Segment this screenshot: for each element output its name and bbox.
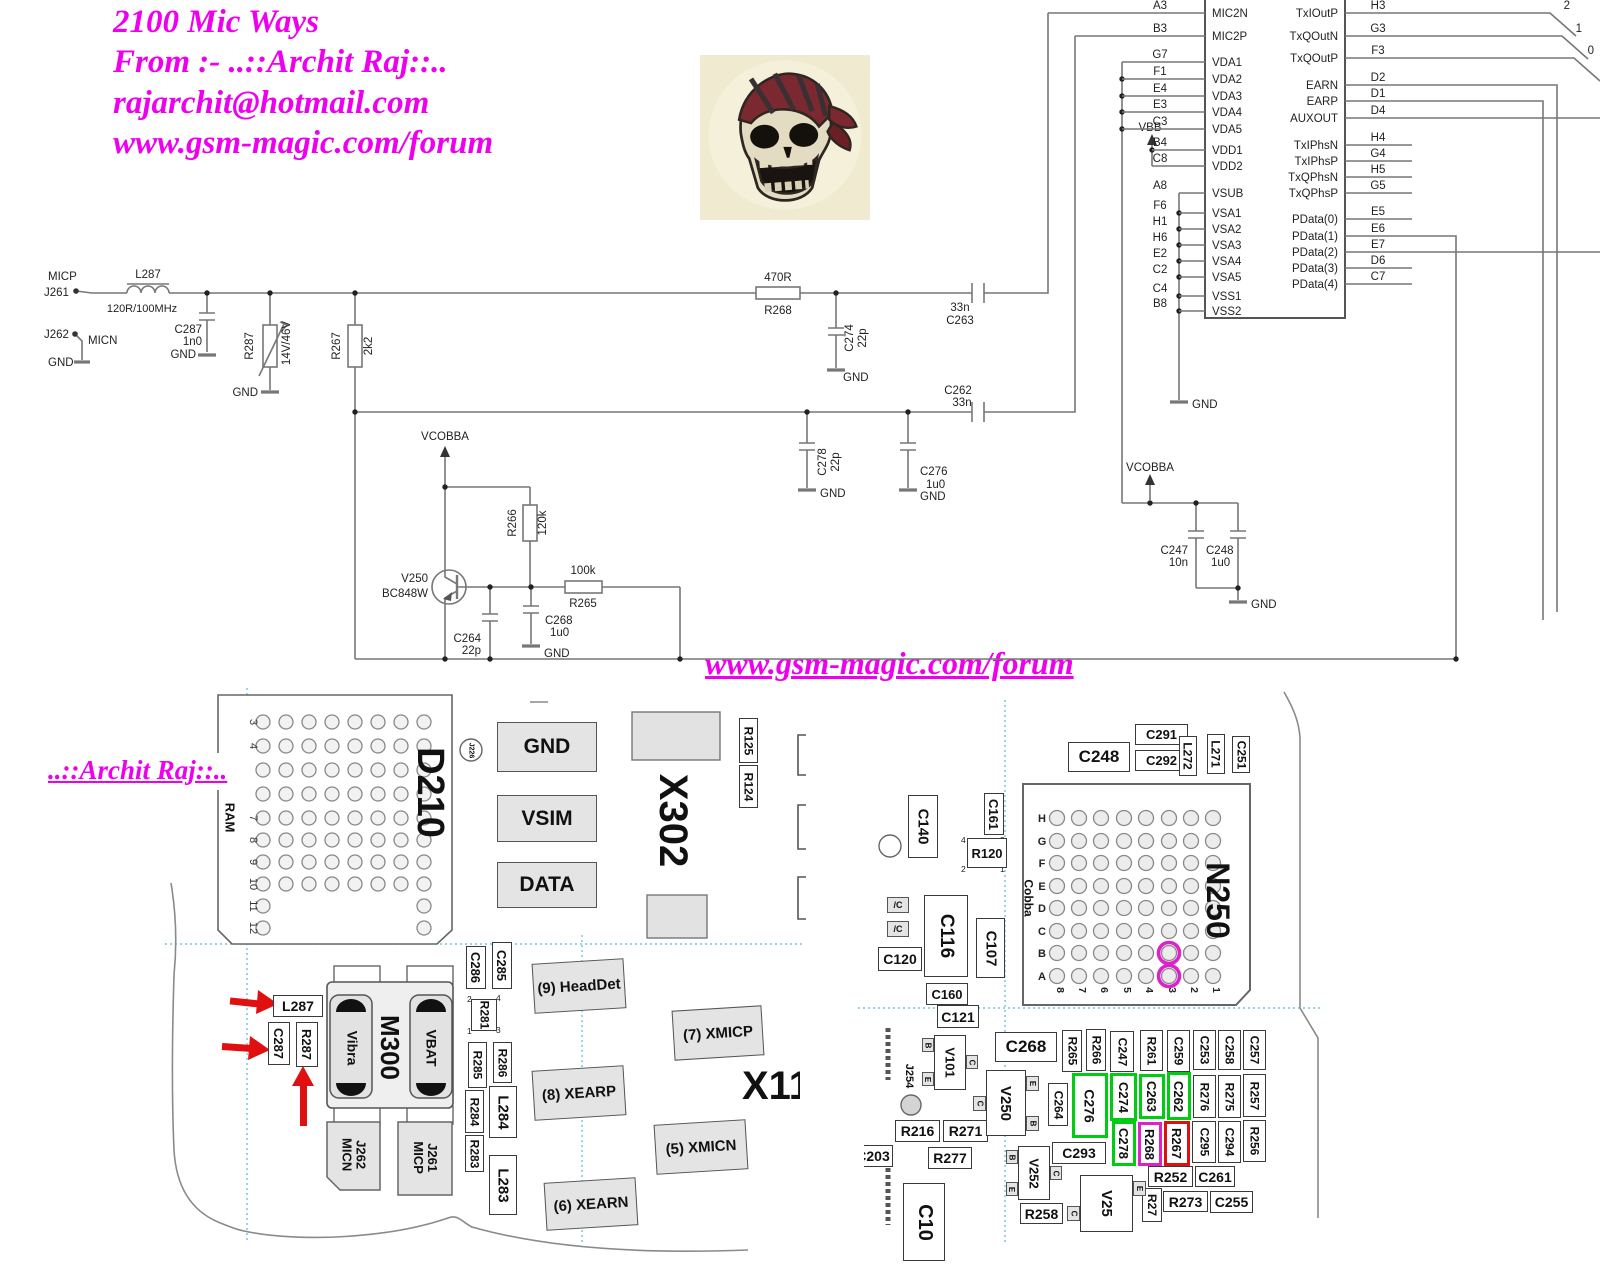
pcb-label-c121: C121: [937, 1005, 979, 1028]
pcb-label-c120: C120: [878, 947, 922, 971]
pcb-label-r283: R283: [465, 1135, 484, 1172]
pcb-label-r286: R286: [493, 1042, 512, 1083]
ic-pin-name-TxQPhsP: TxQPhsP: [1289, 188, 1339, 200]
pcb-label-c274: C274: [1110, 1073, 1137, 1121]
n250-col-number-5: 5: [1121, 987, 1133, 993]
ic-pin-name-PData(1): PData(1): [1292, 231, 1338, 243]
pcb-label-j262: J262MICN: [327, 1122, 380, 1188]
n250-col-number-6: 6: [1098, 987, 1110, 993]
pcb-label-r265: R265: [1062, 1030, 1082, 1072]
svg-text:R267: R267: [331, 332, 343, 360]
svg-text:10n: 10n: [1169, 557, 1188, 569]
ic-pin-name-TxIOutP: TxIOutP: [1296, 8, 1339, 20]
svg-text:100k: 100k: [571, 565, 596, 577]
svg-text:R287: R287: [244, 332, 256, 360]
ic-pin-number-H4: H4: [1371, 132, 1386, 144]
pcb-label-r261: R261: [1140, 1030, 1163, 1071]
pcb-label-c268: C268: [995, 1032, 1057, 1062]
pcb-label-l283: L283: [489, 1155, 517, 1215]
pcb-label-r287: R287: [296, 1022, 318, 1067]
inductor-l287-symbol: [127, 284, 169, 293]
pcb-label-v250-c: C: [973, 1096, 986, 1111]
ic-pin-name-TxQOutP: TxQOutP: [1290, 53, 1338, 65]
n250-col-number-7: 7: [1076, 987, 1088, 993]
svg-text:GND: GND: [232, 387, 258, 399]
svg-text:C274: C274: [844, 324, 856, 352]
svg-text:2: 2: [1564, 0, 1570, 12]
net-label-gnd: GND: [48, 357, 74, 369]
svg-text:GND: GND: [170, 349, 196, 361]
net-label-j261: J261: [44, 287, 69, 299]
pcb-label-r120: R120: [967, 838, 1007, 868]
ic-pin-number-D4: D4: [1371, 105, 1386, 117]
ic-pin-name-VSS2: VSS2: [1212, 306, 1241, 318]
ic-pin-number-C3: C3: [1153, 116, 1168, 128]
ic-pin-number-E7: E7: [1371, 239, 1385, 251]
pcb-label-nc1: /C: [887, 897, 909, 913]
pcb-label-c257: C257: [1243, 1030, 1266, 1070]
pcb-label-c286: C286: [466, 946, 486, 989]
ic-pin-name-VSA1: VSA1: [1212, 208, 1241, 220]
ic-pin-number-H1: H1: [1153, 216, 1168, 228]
ic-pin-name-TxQOutN: TxQOutN: [1289, 31, 1338, 43]
ic-pin-number-H3: H3: [1371, 0, 1386, 12]
ic-pin-name-MIC2N: MIC2N: [1212, 8, 1248, 20]
ic-pin-name-AUXOUT: AUXOUT: [1290, 113, 1338, 125]
svg-text:1u0: 1u0: [926, 479, 945, 491]
ic-pin-number-D1: D1: [1371, 88, 1386, 100]
n250-col-number-4: 4: [1143, 987, 1155, 993]
ic-pin-name-EARN: EARN: [1306, 80, 1338, 92]
pcb-label-c278: C278: [1112, 1121, 1136, 1166]
n250-col-number-2: 2: [1188, 987, 1200, 993]
pcb-label-x302: X302: [645, 755, 700, 885]
ic-pin-name-VDA2: VDA2: [1212, 74, 1242, 86]
pcb-label-c255: C255: [1210, 1191, 1253, 1213]
svg-text:2k2: 2k2: [363, 337, 375, 356]
svg-text:1u0: 1u0: [1211, 557, 1230, 569]
net-label-micn: MICN: [88, 335, 117, 347]
r120-pin-0: 4: [961, 835, 966, 845]
pcb-label-vbat: VBAT: [412, 1000, 452, 1095]
ic-pin-number-C7: C7: [1371, 271, 1386, 283]
ic-pin-name-PData(0): PData(0): [1292, 214, 1338, 226]
svg-text:C263: C263: [946, 315, 974, 327]
svg-text:1u0: 1u0: [550, 627, 569, 639]
svg-text:V250: V250: [401, 573, 428, 585]
d210-row-number-9: 9: [247, 859, 259, 865]
pcb-label-x11: X11: [742, 1062, 800, 1110]
ic-pin-name-VDA5: VDA5: [1212, 124, 1242, 136]
j254-pad-circle: [901, 1095, 921, 1115]
d210-row-number-3: 3: [247, 719, 259, 725]
d210-row-number-12: 12: [247, 922, 259, 934]
ic-pin-name-VDA3: VDA3: [1212, 91, 1242, 103]
svg-text:C262: C262: [944, 385, 972, 397]
svg-text:R268: R268: [764, 305, 792, 317]
ic-pin-number-D6: D6: [1371, 255, 1386, 267]
pcb-label-c107: C107: [976, 918, 1005, 978]
svg-text:22p: 22p: [857, 328, 869, 347]
d210-row-number-10: 10: [247, 878, 259, 890]
ic-pin-number-F1: F1: [1153, 66, 1166, 78]
pcb-label-c116: C116: [924, 895, 968, 977]
pcb-label-v252-b: B: [1006, 1150, 1018, 1164]
pcb-label-v101-b: B: [922, 1038, 934, 1052]
ic-pin-number-G7: G7: [1152, 49, 1167, 61]
ic-pin-number-C4: C4: [1153, 283, 1168, 295]
pcb-label-c251: C251: [1232, 736, 1250, 773]
pcb-label-v101-c: C: [966, 1055, 978, 1069]
ic-pin-name-VDD1: VDD1: [1212, 145, 1243, 157]
pcb-label-r257: R257: [1243, 1074, 1266, 1117]
pcb-label-c261: C261: [1195, 1166, 1235, 1187]
svg-text:C268: C268: [545, 615, 573, 627]
pcb-label-r273: R273: [1163, 1191, 1208, 1212]
pcb-label-vibra: Vibra: [333, 1000, 371, 1095]
pcb-label-l272: L272: [1179, 736, 1197, 776]
pcb-label-c140: C140: [908, 795, 938, 858]
pad-circle: [879, 835, 901, 857]
pcb-label-r256: R256: [1243, 1120, 1266, 1162]
svg-text:C247: C247: [1161, 545, 1189, 557]
pcb-label-r285: R285: [468, 1042, 487, 1088]
pcb-label-c259: C259: [1167, 1030, 1190, 1072]
ic-pin-number-H6: H6: [1153, 232, 1168, 244]
pcb-label-c287: C287: [268, 1022, 290, 1065]
ic-pin-number-B4: B4: [1153, 137, 1168, 149]
ic-pin-name-VDA4: VDA4: [1212, 107, 1243, 119]
pcb-label-data: DATA: [497, 862, 597, 908]
pcb-label-j226: J226: [464, 736, 478, 764]
pcb-label-c253: C253: [1193, 1030, 1216, 1070]
ic-pin-number-H5: H5: [1371, 164, 1386, 176]
ic-pin-number-E3: E3: [1153, 99, 1167, 111]
d210-row-number-8: 8: [247, 837, 259, 843]
n250-row-letter-B: B: [1038, 948, 1046, 960]
ic-pin-name-PData(4): PData(4): [1292, 279, 1338, 291]
n250-row-letter-H: H: [1038, 813, 1046, 825]
svg-text:GND: GND: [820, 488, 846, 500]
svg-text:C278: C278: [817, 448, 829, 476]
svg-text:C248: C248: [1206, 545, 1234, 557]
ic-pin-name-VSA3: VSA3: [1212, 240, 1241, 252]
svg-text:33n: 33n: [950, 302, 969, 314]
pcb-label-xearp: (8) XEARP: [532, 1065, 627, 1121]
pcb-label-r271: R271: [943, 1120, 988, 1142]
pcb-label-xmicn: (5) XMICN: [654, 1119, 749, 1175]
svg-text:R266: R266: [507, 509, 519, 537]
skull-logo-image: [700, 55, 870, 220]
ic-pin-number-A3: A3: [1153, 0, 1167, 12]
svg-text:GND: GND: [843, 372, 869, 384]
ic-pin-number-A8: A8: [1153, 180, 1167, 192]
pcb-label-r281: R281: [471, 999, 497, 1031]
pcb-label-r275: R275: [1218, 1075, 1241, 1118]
pcb-label-c248: C248: [1068, 742, 1130, 772]
pcb-label-c106: C10: [903, 1183, 945, 1261]
pcb-label-r268: R268: [1138, 1122, 1162, 1166]
pcb-label-r266: R266: [1086, 1029, 1106, 1071]
pcb-label-v250-e: E: [1026, 1076, 1039, 1091]
pcb-label-c161: C161: [984, 793, 1004, 835]
net-label-micp: MICP: [48, 271, 77, 283]
svg-text:GND: GND: [1251, 599, 1277, 611]
pcb-label-n250: N250: [1195, 845, 1240, 955]
pcb-label-c295: C295: [1192, 1121, 1216, 1163]
pcb-label-xmicp: (7) XMICP: [672, 1005, 765, 1060]
schematic-page: MICP J261 J262 MICN GND L287 120R/100MHz…: [0, 0, 1600, 1275]
ic-pin-number-F6: F6: [1153, 200, 1166, 212]
pcb-label-r277: R277: [928, 1147, 972, 1169]
pcb-label-vsim: VSIM: [497, 795, 597, 842]
ic-pin-number-B8: B8: [1153, 298, 1167, 310]
svg-text:22p: 22p: [830, 452, 842, 471]
pcb-label-r124: R124: [739, 765, 758, 808]
pcb-label-cobba: Cobba: [1020, 870, 1038, 926]
ic-pin-number-E5: E5: [1371, 206, 1385, 218]
svg-text:C264: C264: [454, 633, 482, 645]
ic-pin-name-VSA5: VSA5: [1212, 272, 1241, 284]
pcb-label-gnd: GND: [497, 722, 597, 772]
svg-text:120R/100MHz: 120R/100MHz: [107, 303, 177, 315]
svg-text:1: 1: [1576, 23, 1582, 35]
signature-text: ..::Archit Raj::..: [46, 753, 241, 790]
ic-pin-number-E2: E2: [1153, 248, 1167, 260]
ic-pin-number-G5: G5: [1370, 180, 1385, 192]
pcb-label-xearn: (6) XEARN: [544, 1177, 639, 1231]
pcb-label-r284: R284: [465, 1090, 484, 1133]
pcb-label-r216: R216: [895, 1120, 940, 1142]
pcb-label-v252-e: E: [1006, 1182, 1018, 1196]
r120-pin-2: 2: [961, 864, 966, 874]
pcb-label-d210: D210: [405, 735, 453, 850]
svg-text:0: 0: [1588, 45, 1594, 57]
pcb-label-c276: C276: [1072, 1073, 1108, 1138]
pcb-label-m300: M300: [370, 990, 410, 1105]
pcb-label-v250-b: B: [1026, 1116, 1039, 1131]
svg-text:C276: C276: [920, 466, 948, 478]
n250-row-letter-C: C: [1038, 926, 1046, 938]
pcb-label-ram: RAM: [222, 795, 238, 840]
pcb-label-c262: C262: [1167, 1072, 1191, 1120]
svg-text:1n0: 1n0: [183, 336, 202, 348]
ic-pin-number-C8: C8: [1153, 153, 1168, 165]
ic-pin-name-TxIPhsN: TxIPhsN: [1294, 140, 1338, 152]
pcb-label-v101-e: E: [922, 1072, 934, 1086]
ic-pin-number-F3: F3: [1371, 45, 1384, 57]
ic-pin-number-B3: B3: [1153, 23, 1167, 35]
d210-row-number-4: 4: [247, 743, 259, 749]
pcb-label-headdet: (9) HeadDet: [532, 958, 627, 1014]
ic-pin-name-PData(3): PData(3): [1292, 263, 1338, 275]
svg-text:14V/46V: 14V/46V: [281, 321, 293, 365]
pcb-label-r267: R267: [1164, 1121, 1190, 1166]
pcb-label-j261: J261MICP: [398, 1122, 452, 1193]
ic-pin-name-VDA1: VDA1: [1212, 57, 1242, 69]
pcb-label-r252: R252: [1148, 1166, 1193, 1187]
ic-pin-name-PData(2): PData(2): [1292, 247, 1338, 259]
svg-text:GND: GND: [1192, 399, 1218, 411]
ic-pin-name-VSUB: VSUB: [1212, 188, 1244, 200]
pcb-label-v101: V101: [934, 1035, 966, 1090]
ic-pin-number-E4: E4: [1153, 83, 1168, 95]
pcb-label-r276: R276: [1193, 1075, 1216, 1118]
ic-pin-name-EARP: EARP: [1307, 96, 1339, 108]
n250-row-letter-G: G: [1038, 836, 1047, 848]
pcb-label-c258: C258: [1218, 1030, 1241, 1070]
pcb-label-v250: V250: [986, 1070, 1026, 1136]
pcb-label-c294: C294: [1218, 1121, 1241, 1163]
ic-pin-name-TxIPhsP: TxIPhsP: [1295, 156, 1339, 168]
svg-text:C287: C287: [175, 324, 203, 336]
pcb-label-v252: V252: [1018, 1146, 1050, 1200]
ic-pin-name-TxQPhsN: TxQPhsN: [1288, 172, 1338, 184]
pcb-label-v25-c: C: [1067, 1206, 1080, 1221]
svg-text:VCOBBA: VCOBBA: [1126, 462, 1174, 474]
svg-text:GND: GND: [920, 491, 946, 503]
svg-text:120k: 120k: [537, 510, 549, 535]
ic-pin-name-VSA4: VSA4: [1212, 256, 1242, 268]
pcb-label-j254: J254: [901, 1055, 917, 1097]
svg-text:22p: 22p: [462, 645, 481, 657]
ic-pin-name-VSA2: VSA2: [1212, 224, 1241, 236]
ic-pin-name-VDD2: VDD2: [1212, 161, 1243, 173]
ic-pin-name-MIC2P: MIC2P: [1212, 31, 1247, 43]
pcb-label-c263: C263: [1139, 1074, 1165, 1119]
pcb-label-l284: L284: [489, 1086, 517, 1138]
svg-text:GND: GND: [544, 648, 570, 660]
svg-text:L287: L287: [135, 269, 161, 281]
svg-text:33n: 33n: [952, 397, 971, 409]
ic-pin-number-G3: G3: [1370, 23, 1385, 35]
net-label-vcobba: VCOBBA: [421, 431, 469, 443]
pcb-label-v25-e: E: [1133, 1181, 1146, 1196]
svg-text:R265: R265: [569, 598, 597, 610]
n250-col-number-8: 8: [1054, 987, 1066, 993]
pcb-label-r125: R125: [739, 718, 758, 763]
svg-text:BC848W: BC848W: [382, 588, 428, 600]
pcb-label-r258: R258: [1020, 1203, 1063, 1224]
pcb-label-v252-c: C: [1050, 1166, 1062, 1180]
ic-pin-name-VSS1: VSS1: [1212, 291, 1241, 303]
pcb-label-l287: L287: [273, 995, 323, 1017]
pcb-label-c285: C285: [492, 942, 512, 989]
pcb-label-c293: C293: [1052, 1142, 1106, 1164]
pcb-label-nc2: /C: [887, 921, 909, 937]
d210-row-number-7: 7: [247, 815, 259, 821]
ic-pin-number-D2: D2: [1371, 72, 1386, 84]
n250-col-number-1: 1: [1210, 987, 1222, 993]
pcb-label-c264: C264: [1048, 1083, 1068, 1126]
svg-text:470R: 470R: [764, 272, 792, 284]
ic-pin-number-G4: G4: [1370, 148, 1386, 160]
ic-pin-number-E6: E6: [1371, 223, 1385, 235]
pcb-label-c247: C247: [1110, 1031, 1134, 1072]
n250-row-letter-F: F: [1039, 858, 1046, 870]
n250-row-letter-D: D: [1038, 903, 1046, 915]
pcb-label-c160: C160: [926, 983, 968, 1005]
ic-pin-number-C2: C2: [1153, 264, 1168, 276]
n250-row-letter-E: E: [1038, 881, 1045, 893]
pcb-label-l271: L271: [1207, 734, 1225, 774]
d210-row-number-11: 11: [247, 900, 259, 911]
net-label-j262: J262: [44, 329, 69, 341]
pcb-label-v25: V25: [1080, 1175, 1133, 1232]
n250-row-letter-A: A: [1038, 971, 1046, 983]
